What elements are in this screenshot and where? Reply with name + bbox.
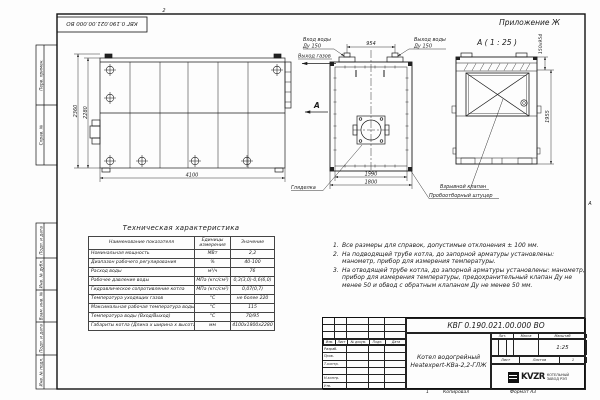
scale-label: Масштаб (539, 334, 587, 338)
margin-label: Перв. примен. (39, 59, 44, 90)
approvals-grid: Разраб. Пров. Т.контр. Н.контр. Утв. (323, 345, 406, 390)
dim-a-height: 1955 (545, 110, 551, 123)
note-number: 2. (333, 251, 342, 266)
cell: МПа (кгс/см²) (195, 277, 231, 286)
approval-label: Пров. (323, 353, 347, 360)
appendix-label: Приложение Ж (499, 18, 561, 27)
water-inlet-label: Вход воды (303, 37, 331, 43)
col-list: Лист (336, 340, 348, 344)
cell: °С (195, 295, 231, 304)
sheet-label: Лист (492, 357, 520, 363)
product-name-line1: Котел водогрейный (417, 354, 480, 362)
side-view-dimensions (74, 54, 285, 182)
view-arrow-letter: А (313, 101, 320, 110)
dim-side-height-outer: 2360 (73, 105, 79, 118)
top-stamp-docnumber: КВГ 0.190.021.00.000 ВО (66, 20, 138, 26)
product-name: Котел водогрейный Heatexpert-КВа-2,2-ГЛЖ (406, 333, 491, 390)
dim-pipe-spacing: 954 (366, 41, 376, 47)
approval-label: Н.контр. (323, 375, 347, 382)
notes-block: 1. Все размеры для справок, допустимые о… (333, 242, 587, 290)
cell: мм (195, 322, 231, 331)
cell: 0,3(3,0)-0,6(6,0) (231, 277, 275, 286)
tech-table: Наименование показателя Единицы измерени… (88, 236, 275, 331)
footer-copied-label: Копировал (443, 390, 469, 395)
cell: Диапазон рабочего регулирования (89, 259, 195, 268)
gas-outlet-label: Выход газов (298, 54, 331, 60)
col-header: Единицы измерения (195, 237, 231, 250)
company-name: КОТЕЛЬНЫЙ ЗАВОД РЭП (547, 373, 569, 381)
table-row: Номинальная мощностьМВт2,2 (89, 250, 275, 259)
cell: Максимальная рабочая температура воды (89, 304, 195, 313)
col-dokum: № докум. (348, 340, 370, 344)
revision-grid (323, 318, 406, 339)
col-podp: Подп. (370, 340, 386, 344)
cell: 40-100 (231, 259, 275, 268)
cell: °С (195, 304, 231, 313)
cell: Габариты котла (Длина х ширина х высота) (89, 322, 195, 331)
cell: м³/ч (195, 268, 231, 277)
dim-a-top: 150х954 (538, 34, 544, 54)
cell: не более 220 (231, 295, 275, 304)
note-item: 3. На отводящей трубе котла, до запорной… (333, 267, 587, 290)
document-number: КВГ 0.190.021.00.000 ВО (406, 318, 586, 333)
lit-label: Лит. (492, 334, 514, 338)
note-text: Все размеры для справок, допустимые откл… (342, 242, 587, 250)
explosion-valve-label: Взрывной клапан (440, 184, 487, 190)
dim-side-height-inner: 2280 (83, 106, 89, 119)
cell: Гидравлическое сопротивление котла (89, 286, 195, 295)
sheet-row: Лист Листов 1 (491, 356, 586, 364)
col-izm: Изм. (324, 340, 336, 344)
footer-format-label: Формат А3 (510, 390, 536, 395)
tech-table-title: Техническая характеристика (88, 224, 274, 232)
note-number: 3. (333, 267, 342, 290)
note-text: На подводящей трубе котла, до запорной а… (342, 251, 587, 266)
front-view-linework (330, 50, 412, 176)
col-data: Дата (386, 340, 407, 344)
cell: 2,2 (231, 250, 275, 259)
mass-label: Масса (514, 334, 539, 338)
cell: Температура уходящих газов (89, 295, 195, 304)
dim-front-outer: 1800 (365, 180, 378, 186)
dim-side-length: 4100 (186, 173, 199, 179)
note-item: 2. На подводящей трубе котла, до запорно… (333, 251, 587, 266)
margin-label: Инв. № дубл. (39, 260, 44, 289)
cell: Температура воды (Вход/Выход) (89, 313, 195, 322)
col-header: Значение (231, 237, 275, 250)
table-row: Рабочее давление водыМПа (кгс/см²)0,3(3,… (89, 277, 275, 286)
company-abbr: KVZR (521, 372, 545, 382)
table-row: Расход водым³/ч76 (89, 268, 275, 277)
title-block: Изм. Лист № докум. Подп. Дата Разраб. Пр… (322, 317, 585, 389)
cell: Номинальная мощность (89, 250, 195, 259)
cell: °С (195, 313, 231, 322)
sampling-fitting-label: Пробоотборный штуцер (429, 193, 493, 199)
margin-label: Подп. и дата (39, 226, 44, 255)
company-logo-icon (508, 372, 519, 383)
note-number: 1. (333, 242, 342, 250)
dim-front-inner: 1590 (365, 172, 378, 178)
sheets-count: 1 (560, 357, 587, 363)
cell: 70/95 (231, 313, 275, 322)
a-view-linework (452, 53, 541, 164)
cell: 4100х1800х2280 (231, 322, 275, 331)
margin-label: Справ. № (39, 124, 44, 145)
cell: МПа (кгс/см²) (195, 286, 231, 295)
product-name-line2: Heatexpert-КВа-2,2-ГЛЖ (410, 362, 486, 370)
water-outlet-dn: Ду 150 (413, 44, 432, 50)
approval-label: Утв. (323, 383, 347, 390)
a-view-title: А ( 1 : 25 ) (476, 38, 517, 47)
approval-label: Т.контр. (323, 361, 347, 368)
cell: 0,07(0,7) (231, 286, 275, 295)
company-cell: KVZR КОТЕЛЬНЫЙ ЗАВОД РЭП (491, 364, 586, 390)
zone-number-top: 2 (162, 8, 165, 14)
col-header: Наименование показателя (89, 237, 195, 250)
scale-value: 1:25 (539, 340, 587, 355)
company-line2: ЗАВОД РЭП (547, 377, 569, 381)
approval-label (323, 368, 347, 375)
side-view-linework (90, 54, 291, 172)
cell: Рабочее давление воды (89, 277, 195, 286)
cell: % (195, 259, 231, 268)
approval-label: Разраб. (323, 346, 347, 353)
table-row: Температура уходящих газов°Сне более 220 (89, 295, 275, 304)
drawing-sheet: 2 А КВГ 0.190.021.00.000 ВО Приложение Ж… (0, 0, 600, 400)
lit-mass-scale-values: 1:25 (491, 339, 586, 356)
cell: МВт (195, 250, 231, 259)
margin-label: Взам. инв. № (39, 291, 44, 320)
table-row: Диапазон рабочего регулирования%40-100 (89, 259, 275, 268)
note-text: На отводящей трубе котла, до запорной ар… (342, 267, 587, 290)
table-row: Температура воды (Вход/Выход)°С70/95 (89, 313, 275, 322)
margin-label: Подп. и дата (39, 324, 44, 353)
sheets-label: Листов (520, 357, 560, 363)
water-outlet-label: Выход воды (414, 37, 446, 43)
table-row: Габариты котла (Длина х ширина х высота)… (89, 322, 275, 331)
footer-number: 1 (426, 390, 429, 395)
cell: Расход воды (89, 268, 195, 277)
cell: 76 (231, 268, 275, 277)
margin-label: Инв. № подл. (39, 358, 44, 387)
table-row: Максимальная рабочая температура воды°С1… (89, 304, 275, 313)
tech-characteristics: Техническая характеристика Наименование … (88, 224, 274, 331)
table-row: Гидравлическое сопротивление котлаМПа (к… (89, 286, 275, 295)
peephole-label: Гляделка (291, 185, 316, 191)
table-header-row: Наименование показателя Единицы измерени… (89, 237, 275, 250)
note-item: 1. Все размеры для справок, допустимые о… (333, 242, 587, 250)
water-inlet-dn: Ду 150 (302, 44, 321, 50)
zone-letter-right: А (587, 201, 592, 207)
cell: 115 (231, 304, 275, 313)
